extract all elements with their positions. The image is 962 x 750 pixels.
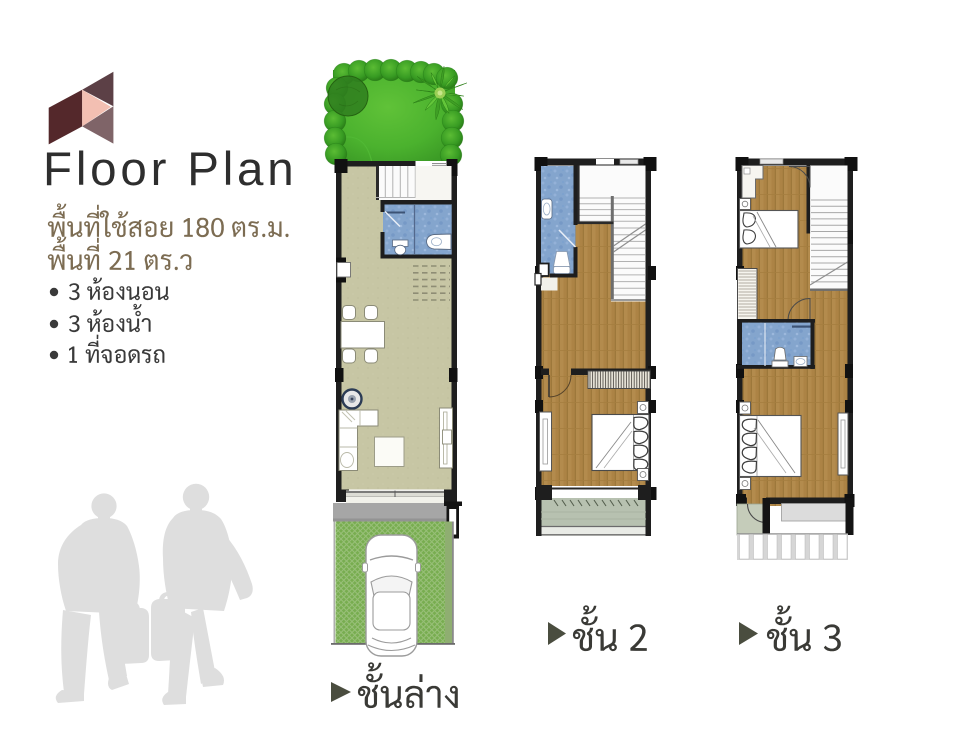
svg-text:Floor Plan: Floor Plan	[43, 143, 298, 196]
